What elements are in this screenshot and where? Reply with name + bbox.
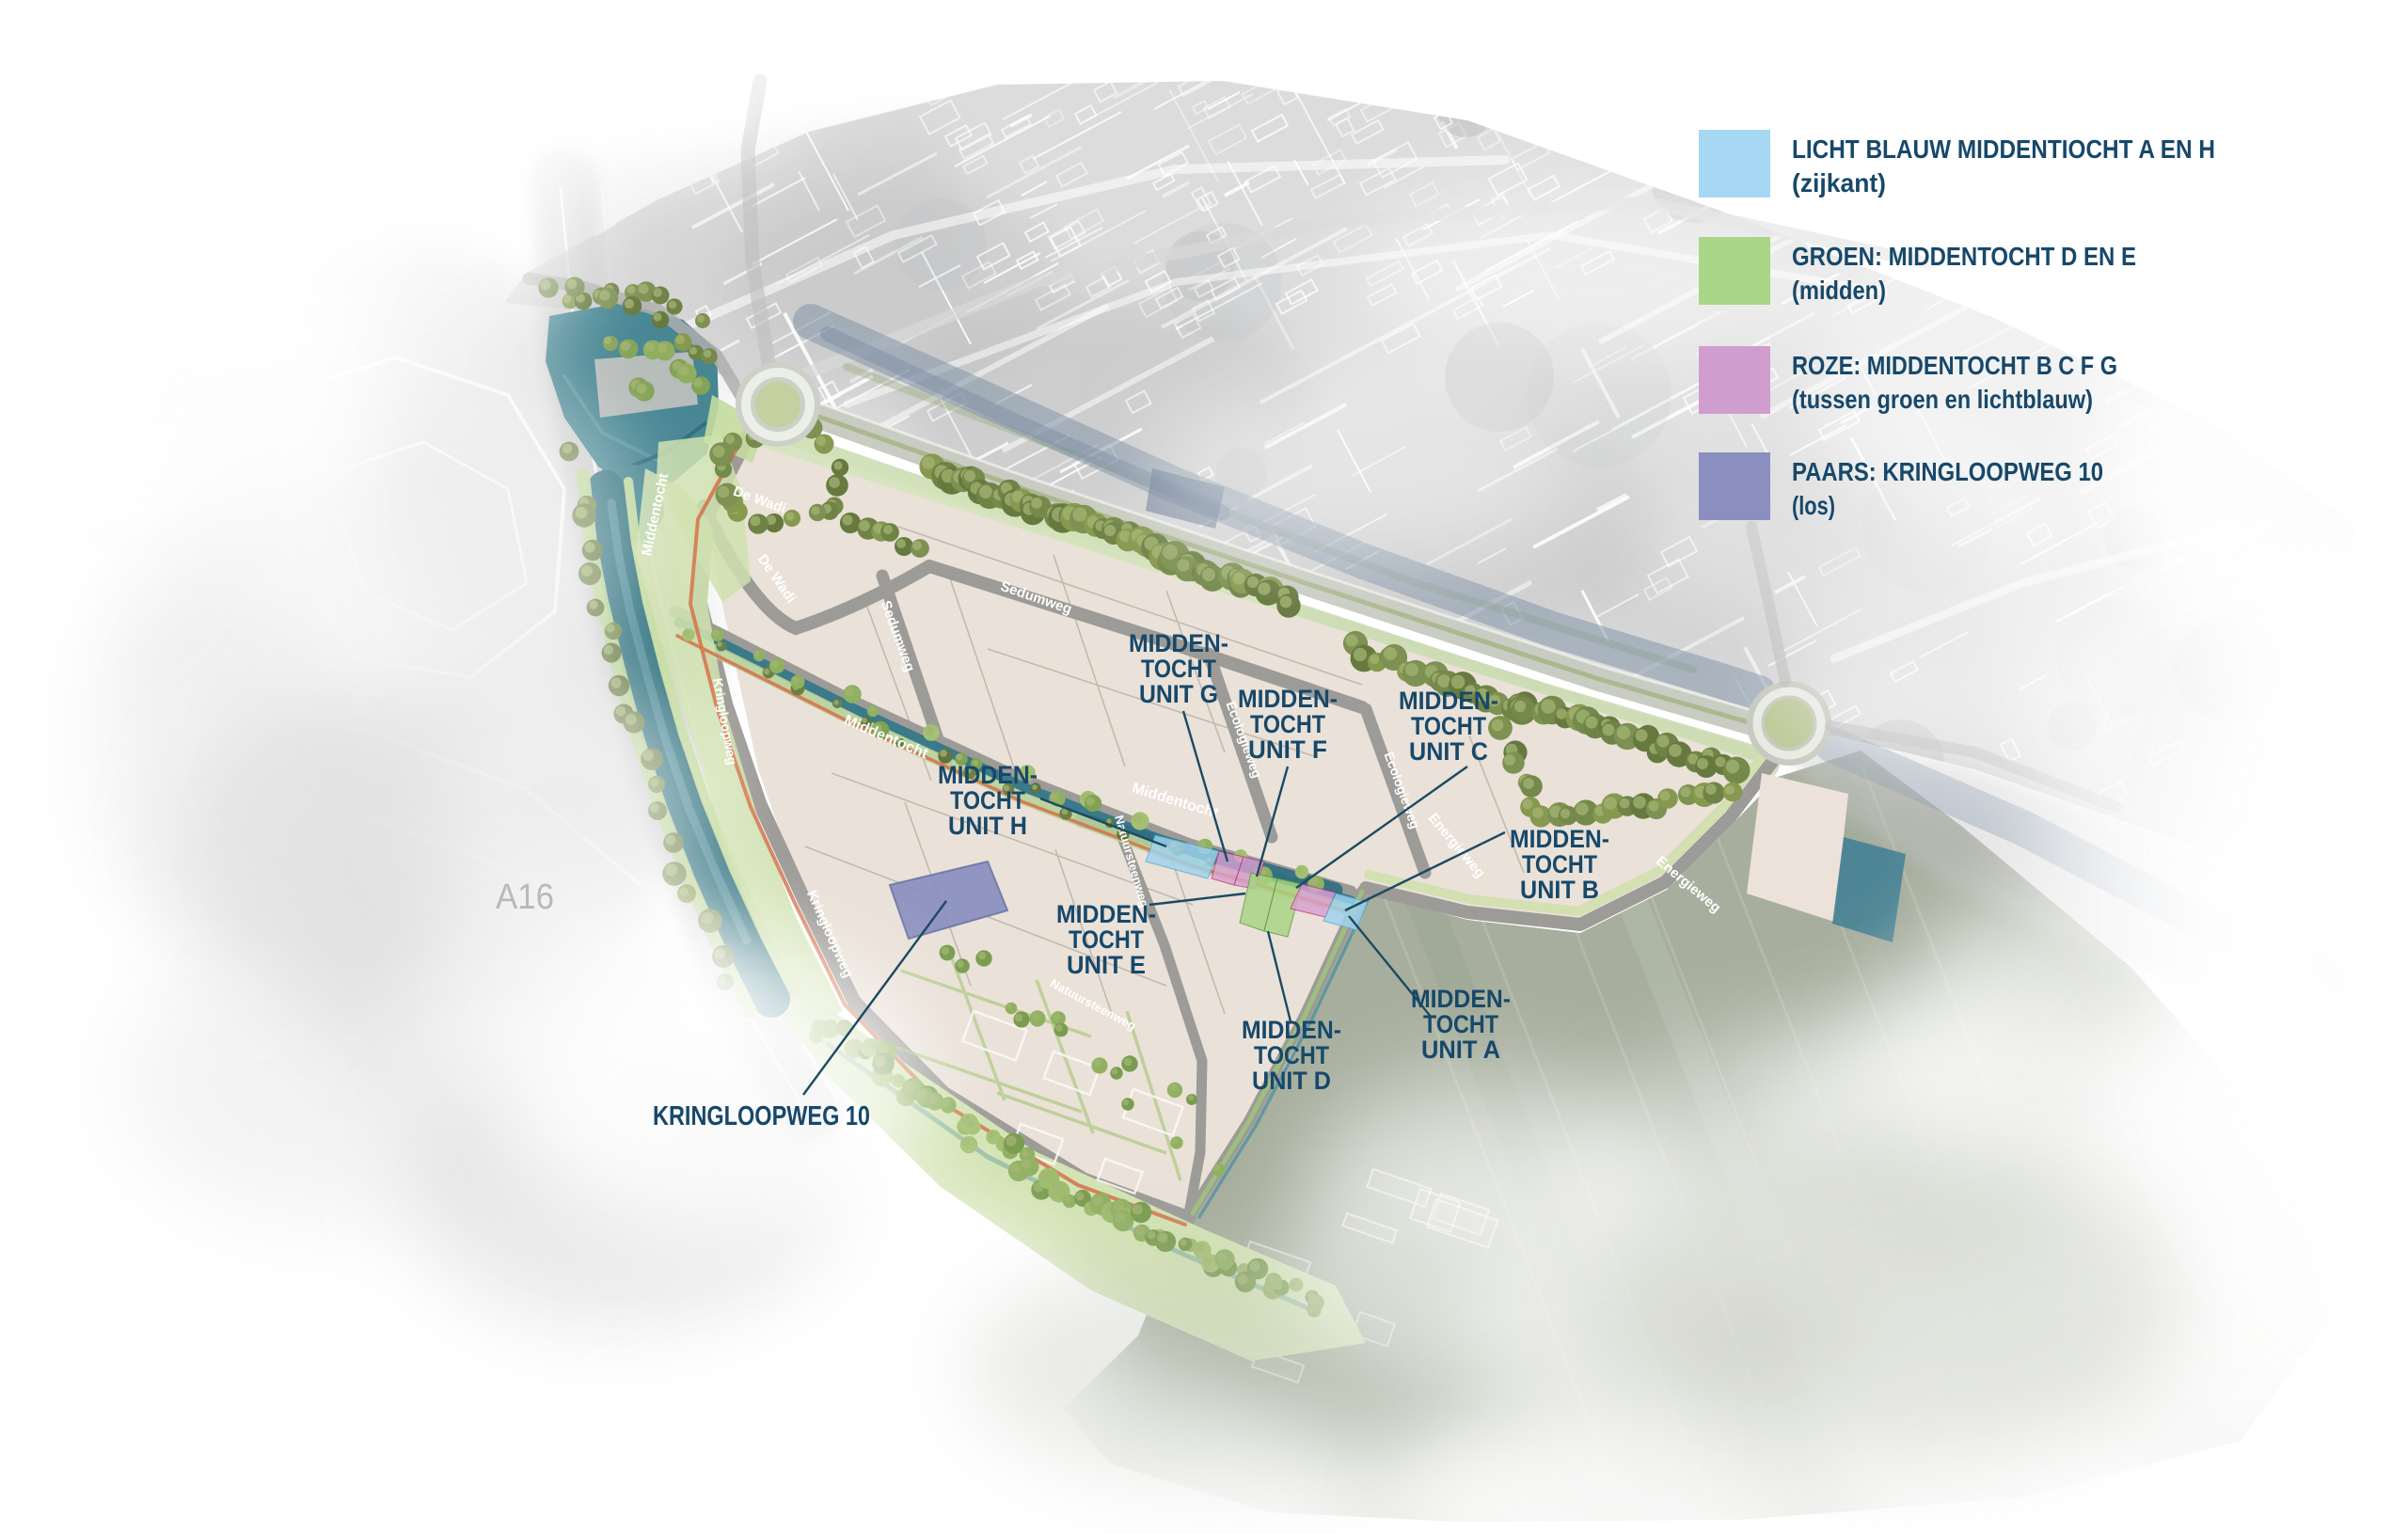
- svg-text:MIDDEN-TOCHTUNIT G: MIDDEN-TOCHTUNIT G: [1129, 629, 1228, 708]
- svg-text:MIDDEN-TOCHTUNIT B: MIDDEN-TOCHTUNIT B: [1510, 825, 1609, 904]
- svg-text:MIDDEN-TOCHTUNIT A: MIDDEN-TOCHTUNIT A: [1411, 985, 1511, 1064]
- svg-text:KRINGLOOPWEG 10: KRINGLOOPWEG 10: [653, 1101, 870, 1131]
- svg-text:(tussen groen en lichtblauw): (tussen groen en lichtblauw): [1792, 385, 2093, 414]
- svg-text:MIDDEN-TOCHTUNIT H: MIDDEN-TOCHTUNIT H: [938, 761, 1038, 840]
- svg-text:PAARS: KRINGLOOPWEG 10: PAARS: KRINGLOOPWEG 10: [1792, 457, 2103, 486]
- svg-text:GROEN: MIDDENTOCHT D EN E: GROEN: MIDDENTOCHT D EN E: [1792, 242, 2136, 271]
- svg-text:MIDDEN-TOCHTUNIT D: MIDDEN-TOCHTUNIT D: [1242, 1016, 1341, 1095]
- svg-text:MIDDEN-TOCHTUNIT E: MIDDEN-TOCHTUNIT E: [1056, 900, 1156, 979]
- svg-text:(midden): (midden): [1792, 276, 1886, 305]
- svg-text:LICHT BLAUW MIDDENTIOCHT A EN: LICHT BLAUW MIDDENTIOCHT A EN H: [1792, 134, 2215, 164]
- svg-text:MIDDEN-TOCHTUNIT F: MIDDEN-TOCHTUNIT F: [1238, 685, 1338, 764]
- svg-text:(los): (los): [1792, 491, 1835, 520]
- svg-text:ROZE: MIDDENTOCHT B C F G: ROZE: MIDDENTOCHT B C F G: [1792, 351, 2117, 380]
- svg-text:MIDDEN-TOCHTUNIT C: MIDDEN-TOCHTUNIT C: [1399, 687, 1498, 766]
- svg-text:A16: A16: [496, 878, 554, 917]
- svg-text:(zijkant): (zijkant): [1792, 168, 1886, 198]
